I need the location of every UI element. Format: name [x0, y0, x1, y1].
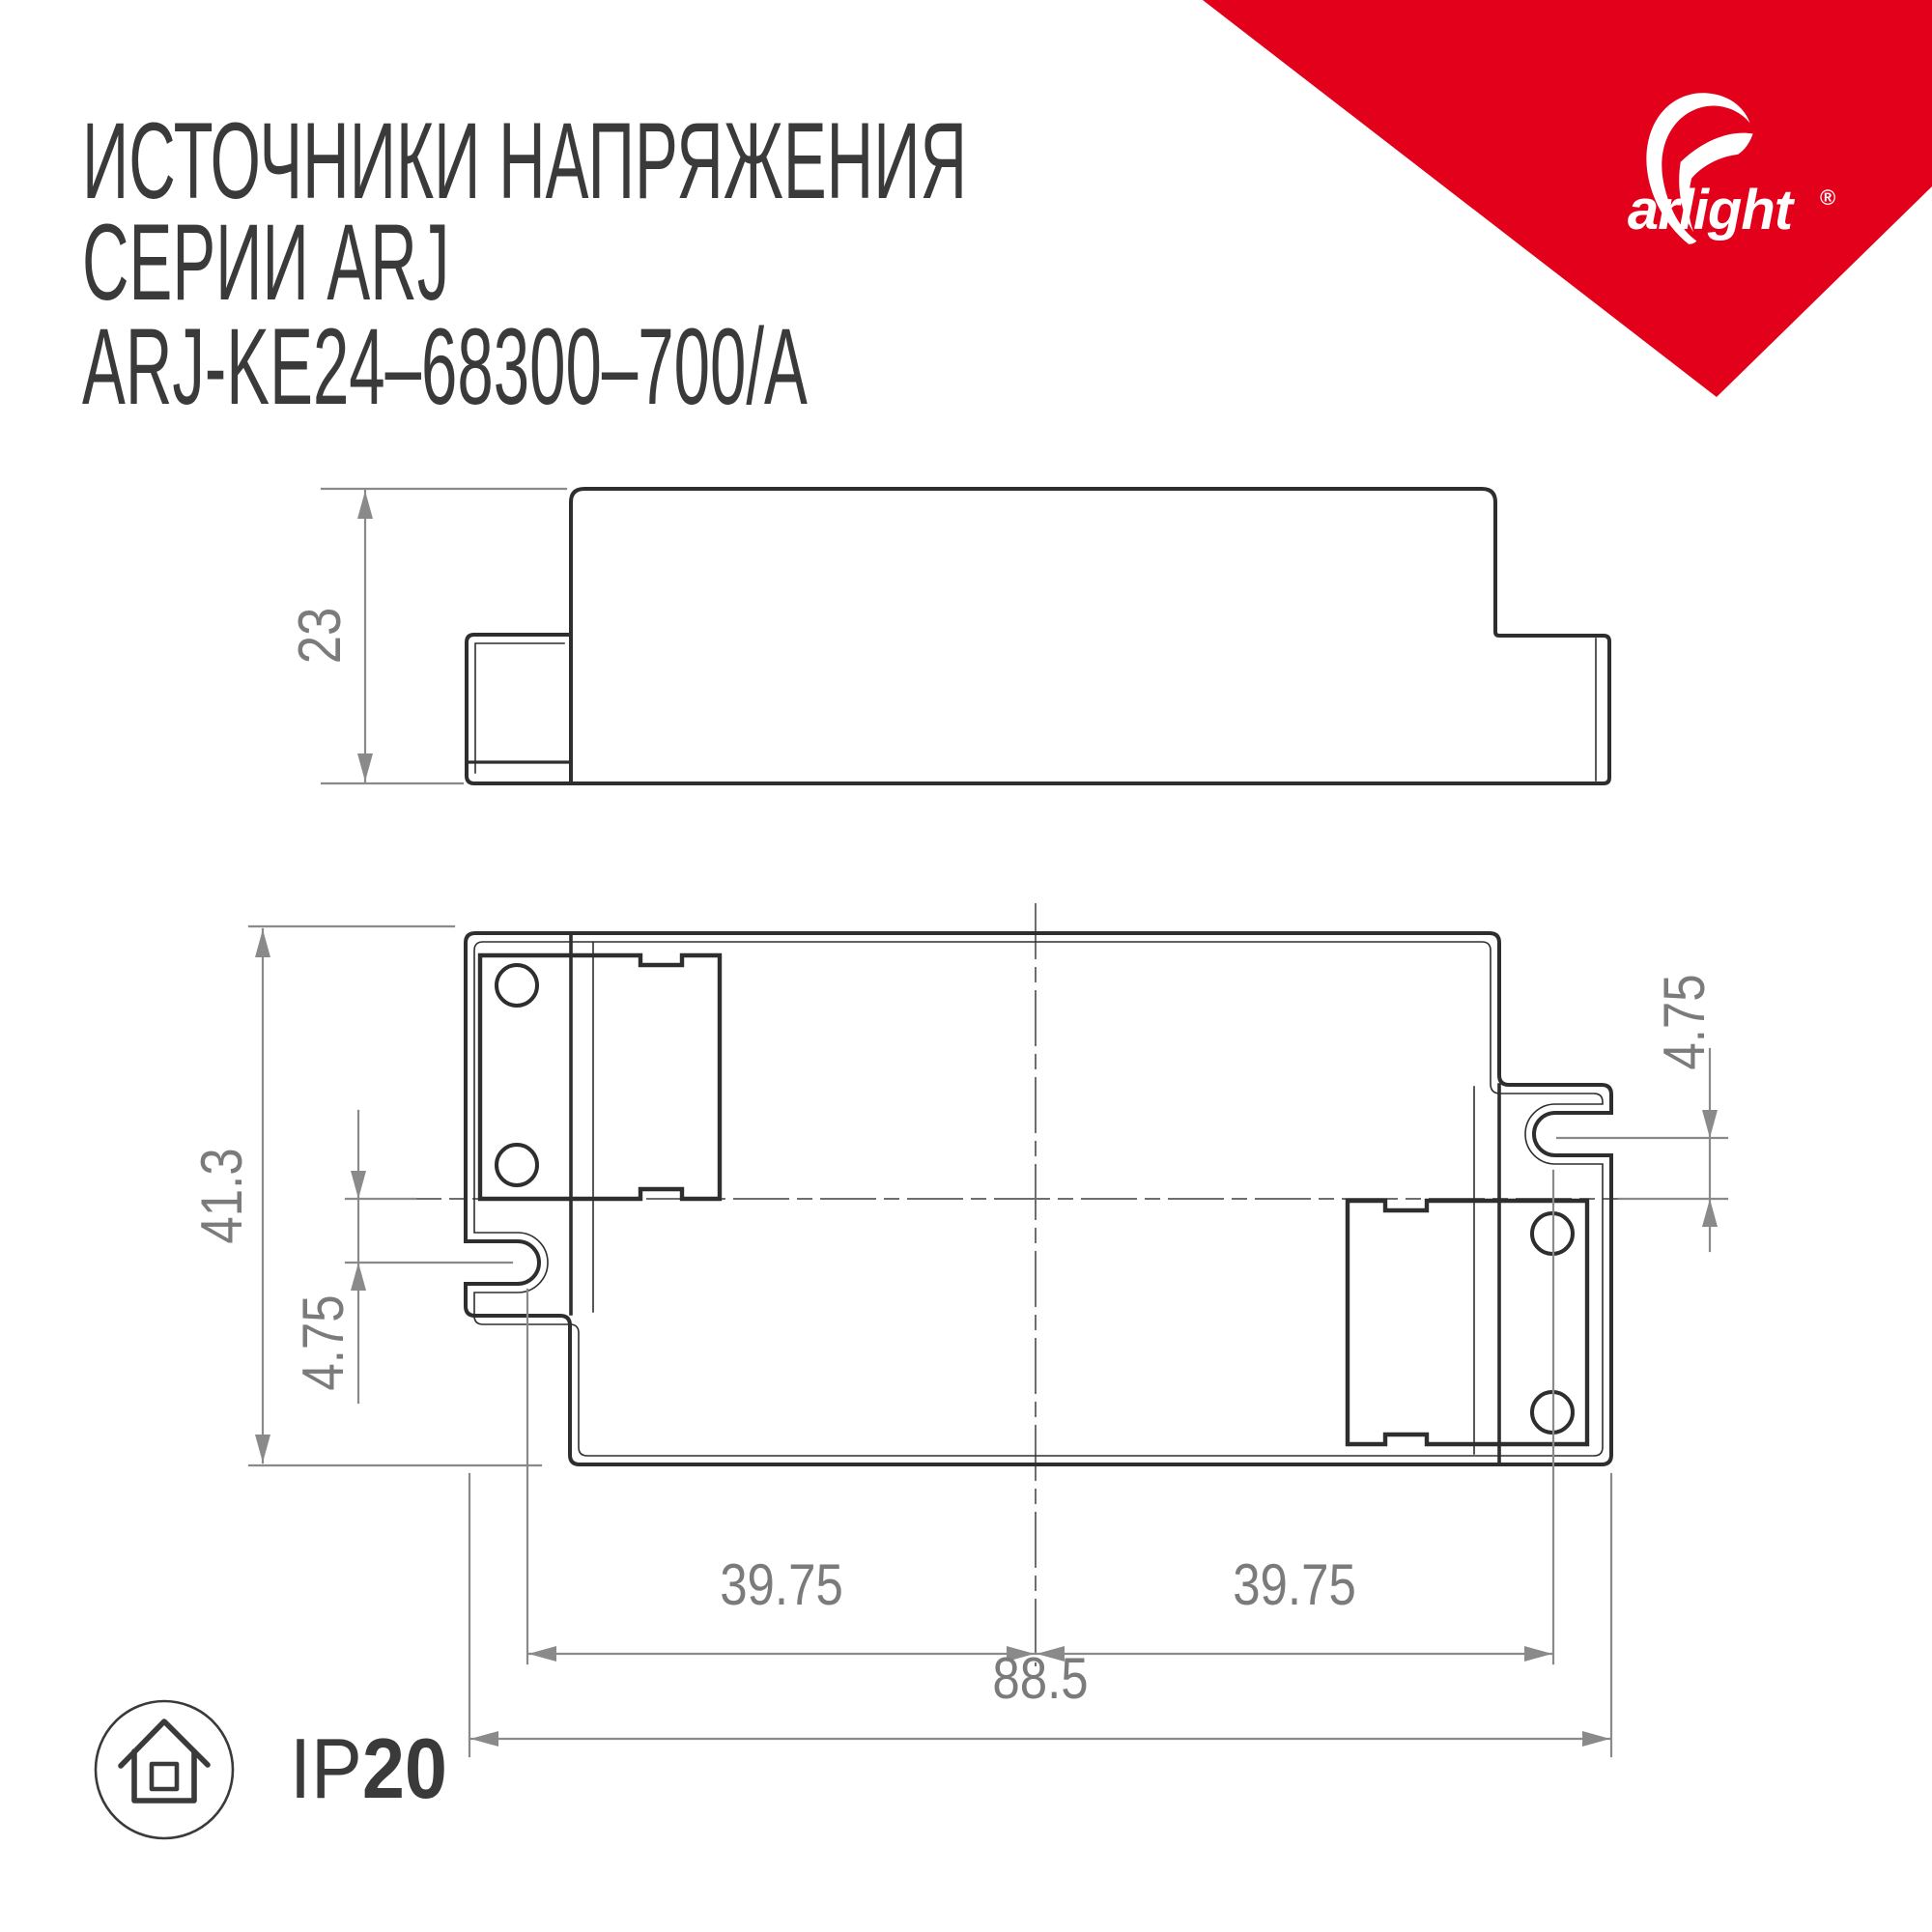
screw-hole-icon — [497, 965, 537, 1006]
side-flange-inner-line — [475, 643, 564, 773]
terminal-block-left — [480, 955, 720, 1199]
ip-prefix: IP — [290, 1720, 362, 1816]
arrow-down-icon — [357, 753, 373, 781]
side-view — [322, 489, 1609, 783]
screw-hole-icon — [497, 1145, 537, 1185]
arrow-up-icon — [1702, 1199, 1718, 1227]
ip-value: 20 — [362, 1720, 447, 1816]
arrow-right-icon — [1582, 1731, 1610, 1747]
dim-label-88-5: 88.5 — [992, 1646, 1088, 1711]
side-dim-label-23: 23 — [287, 608, 354, 665]
terminal-block-right — [1348, 1201, 1587, 1444]
dim-label-4-75-right: 4.75 — [1652, 974, 1717, 1069]
arrow-down-icon — [1702, 1110, 1718, 1138]
arrow-up-icon — [357, 491, 373, 519]
datasheet-page: ИСТОЧНИКИ НАПРЯЖЕНИЯ СЕРИИ ARJ ARJ-KE24–… — [0, 0, 1932, 1932]
arrow-left-icon — [470, 1731, 498, 1747]
arrow-right-icon — [1524, 1646, 1552, 1662]
title-line-3: ARJ-KE24–68300–700/A — [82, 305, 808, 427]
house-window — [152, 1764, 177, 1789]
side-cover-outline — [571, 489, 1609, 783]
arrow-up-icon — [351, 1263, 366, 1291]
dim-label-41-3: 41.3 — [189, 1148, 254, 1243]
dim-label-39-75-right: 39.75 — [1233, 1552, 1356, 1617]
ip-rating-text: IP20 — [290, 1720, 447, 1816]
ip-rating-badge — [96, 1701, 233, 1838]
arrow-left-icon — [528, 1646, 556, 1662]
registered-trademark: ® — [1820, 185, 1835, 210]
house-walls — [134, 1751, 194, 1801]
title-block: ИСТОЧНИКИ НАПРЯЖЕНИЯ СЕРИИ ARJ ARJ-KE24–… — [82, 99, 967, 427]
brand-logo-text: arlight — [1628, 179, 1796, 241]
arrow-down-icon — [351, 1171, 366, 1199]
top-view — [249, 904, 1727, 1756]
drawing-canvas: ИСТОЧНИКИ НАПРЯЖЕНИЯ СЕРИИ ARJ ARJ-KE24–… — [0, 0, 1932, 1932]
indoor-house-icon — [121, 1721, 208, 1801]
dim-label-39-75-left: 39.75 — [720, 1552, 843, 1617]
dim-label-4-75-left: 4.75 — [291, 1294, 355, 1390]
arrow-up-icon — [255, 929, 270, 957]
arrow-down-icon — [255, 1435, 270, 1463]
brand-corner: arlight ® — [1203, 0, 1932, 397]
